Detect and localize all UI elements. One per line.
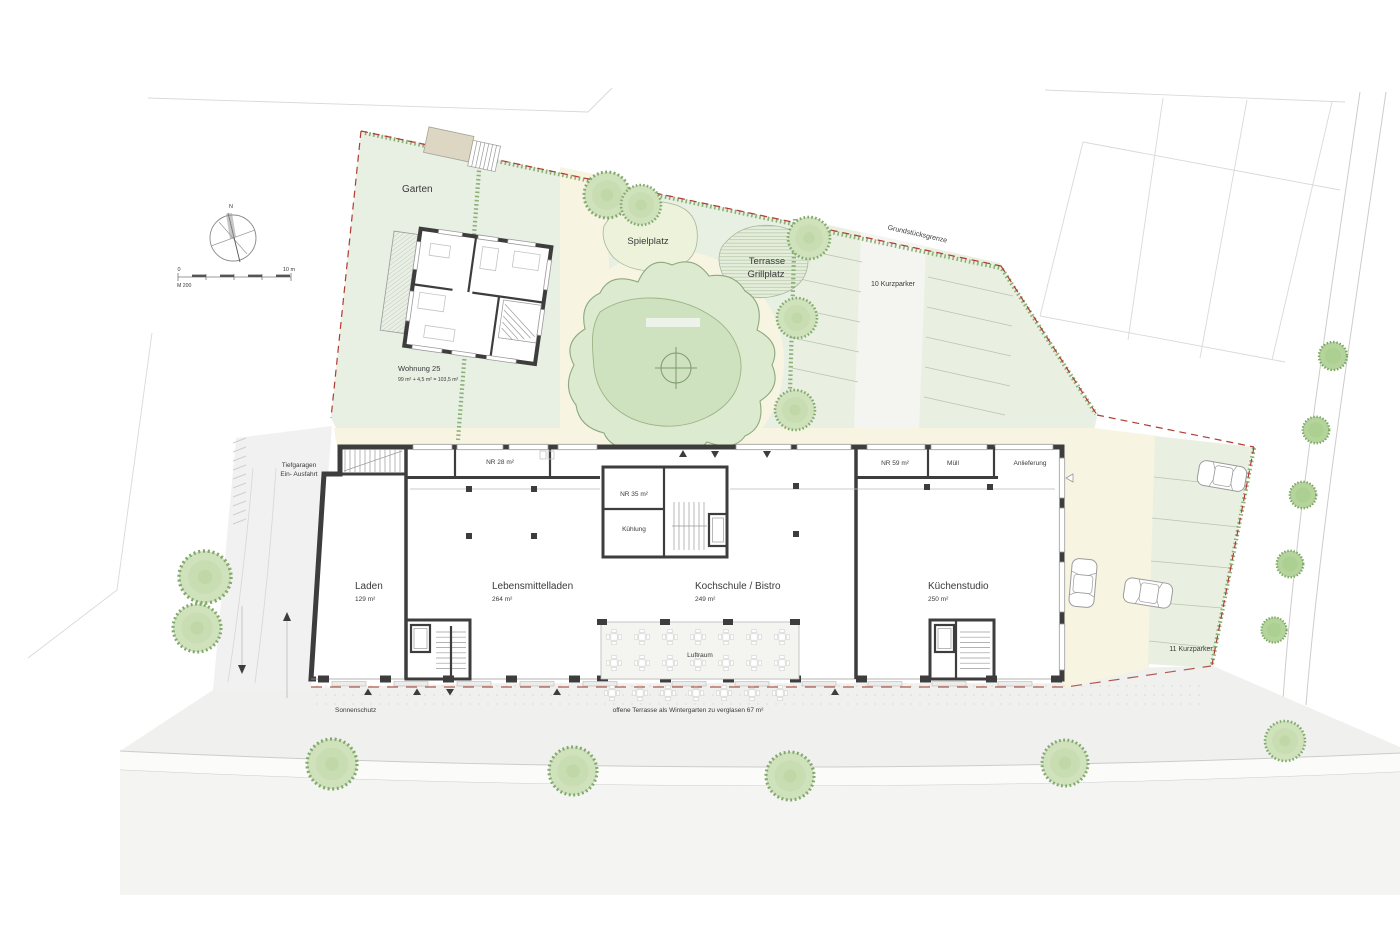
label-sonnenschutz: Sonnenschutz bbox=[335, 707, 376, 714]
label-parking-10: 10 Kurzparker bbox=[871, 281, 916, 288]
label-lebensmittelladen-area: 264 m² bbox=[492, 596, 513, 603]
label-muell: Müll bbox=[947, 460, 959, 467]
label-terrasse: Terrasse bbox=[749, 256, 785, 267]
label-wohnung-name: Wohnung 25 bbox=[398, 364, 440, 373]
label-wintergarten: offene Terrasse als Wintergarten zu verg… bbox=[613, 707, 765, 714]
label-nr35: NR 35 m² bbox=[620, 491, 649, 498]
scale-ten: 10 m bbox=[283, 267, 296, 273]
main-building bbox=[311, 444, 1065, 686]
wohnung-building bbox=[378, 223, 553, 366]
scale-name: M 200 bbox=[177, 283, 192, 289]
bench bbox=[646, 318, 700, 327]
label-luftraum: Luftraum bbox=[687, 652, 713, 659]
label-tiefgarage-2: Ein- Ausfahrt bbox=[280, 471, 317, 478]
luftraum-area bbox=[597, 619, 800, 679]
label-laden-name: Laden bbox=[355, 581, 383, 592]
label-kuehlung: Kühlung bbox=[622, 526, 646, 533]
label-spielplatz: Spielplatz bbox=[627, 236, 668, 247]
label-kochschule-name: Kochschule / Bistro bbox=[695, 581, 781, 592]
label-garten: Garten bbox=[402, 184, 433, 195]
label-parking-11: 11 Kurzparker bbox=[1169, 646, 1213, 653]
label-kuechenstudio-area: 250 m² bbox=[928, 596, 949, 603]
label-kochschule-area: 249 m² bbox=[695, 596, 716, 603]
label-nr28: NR 28 m² bbox=[486, 459, 515, 466]
label-nr59: NR 59 m² bbox=[881, 460, 910, 467]
floor-plan: N 0 10 m M 200 Garten Spielplatz Terrass… bbox=[0, 0, 1400, 933]
label-lebensmittelladen-name: Lebensmittelladen bbox=[492, 581, 573, 592]
label-laden-area: 129 m² bbox=[355, 596, 376, 603]
north-label: N bbox=[229, 204, 233, 210]
label-tiefgarage-1: Tiefgaragen bbox=[282, 462, 317, 469]
label-wohnung-area: 99 m² + 4,5 m² = 103,5 m² bbox=[398, 377, 459, 383]
label-grillplatz: Grillplatz bbox=[748, 269, 785, 280]
scale-zero: 0 bbox=[177, 267, 180, 273]
site-plan-canvas: N 0 10 m M 200 Garten Spielplatz Terrass… bbox=[0, 0, 1400, 933]
label-anlieferung: Anlieferung bbox=[1014, 460, 1047, 467]
label-kuechenstudio-name: Küchenstudio bbox=[928, 581, 989, 592]
right-windows bbox=[1059, 458, 1064, 670]
